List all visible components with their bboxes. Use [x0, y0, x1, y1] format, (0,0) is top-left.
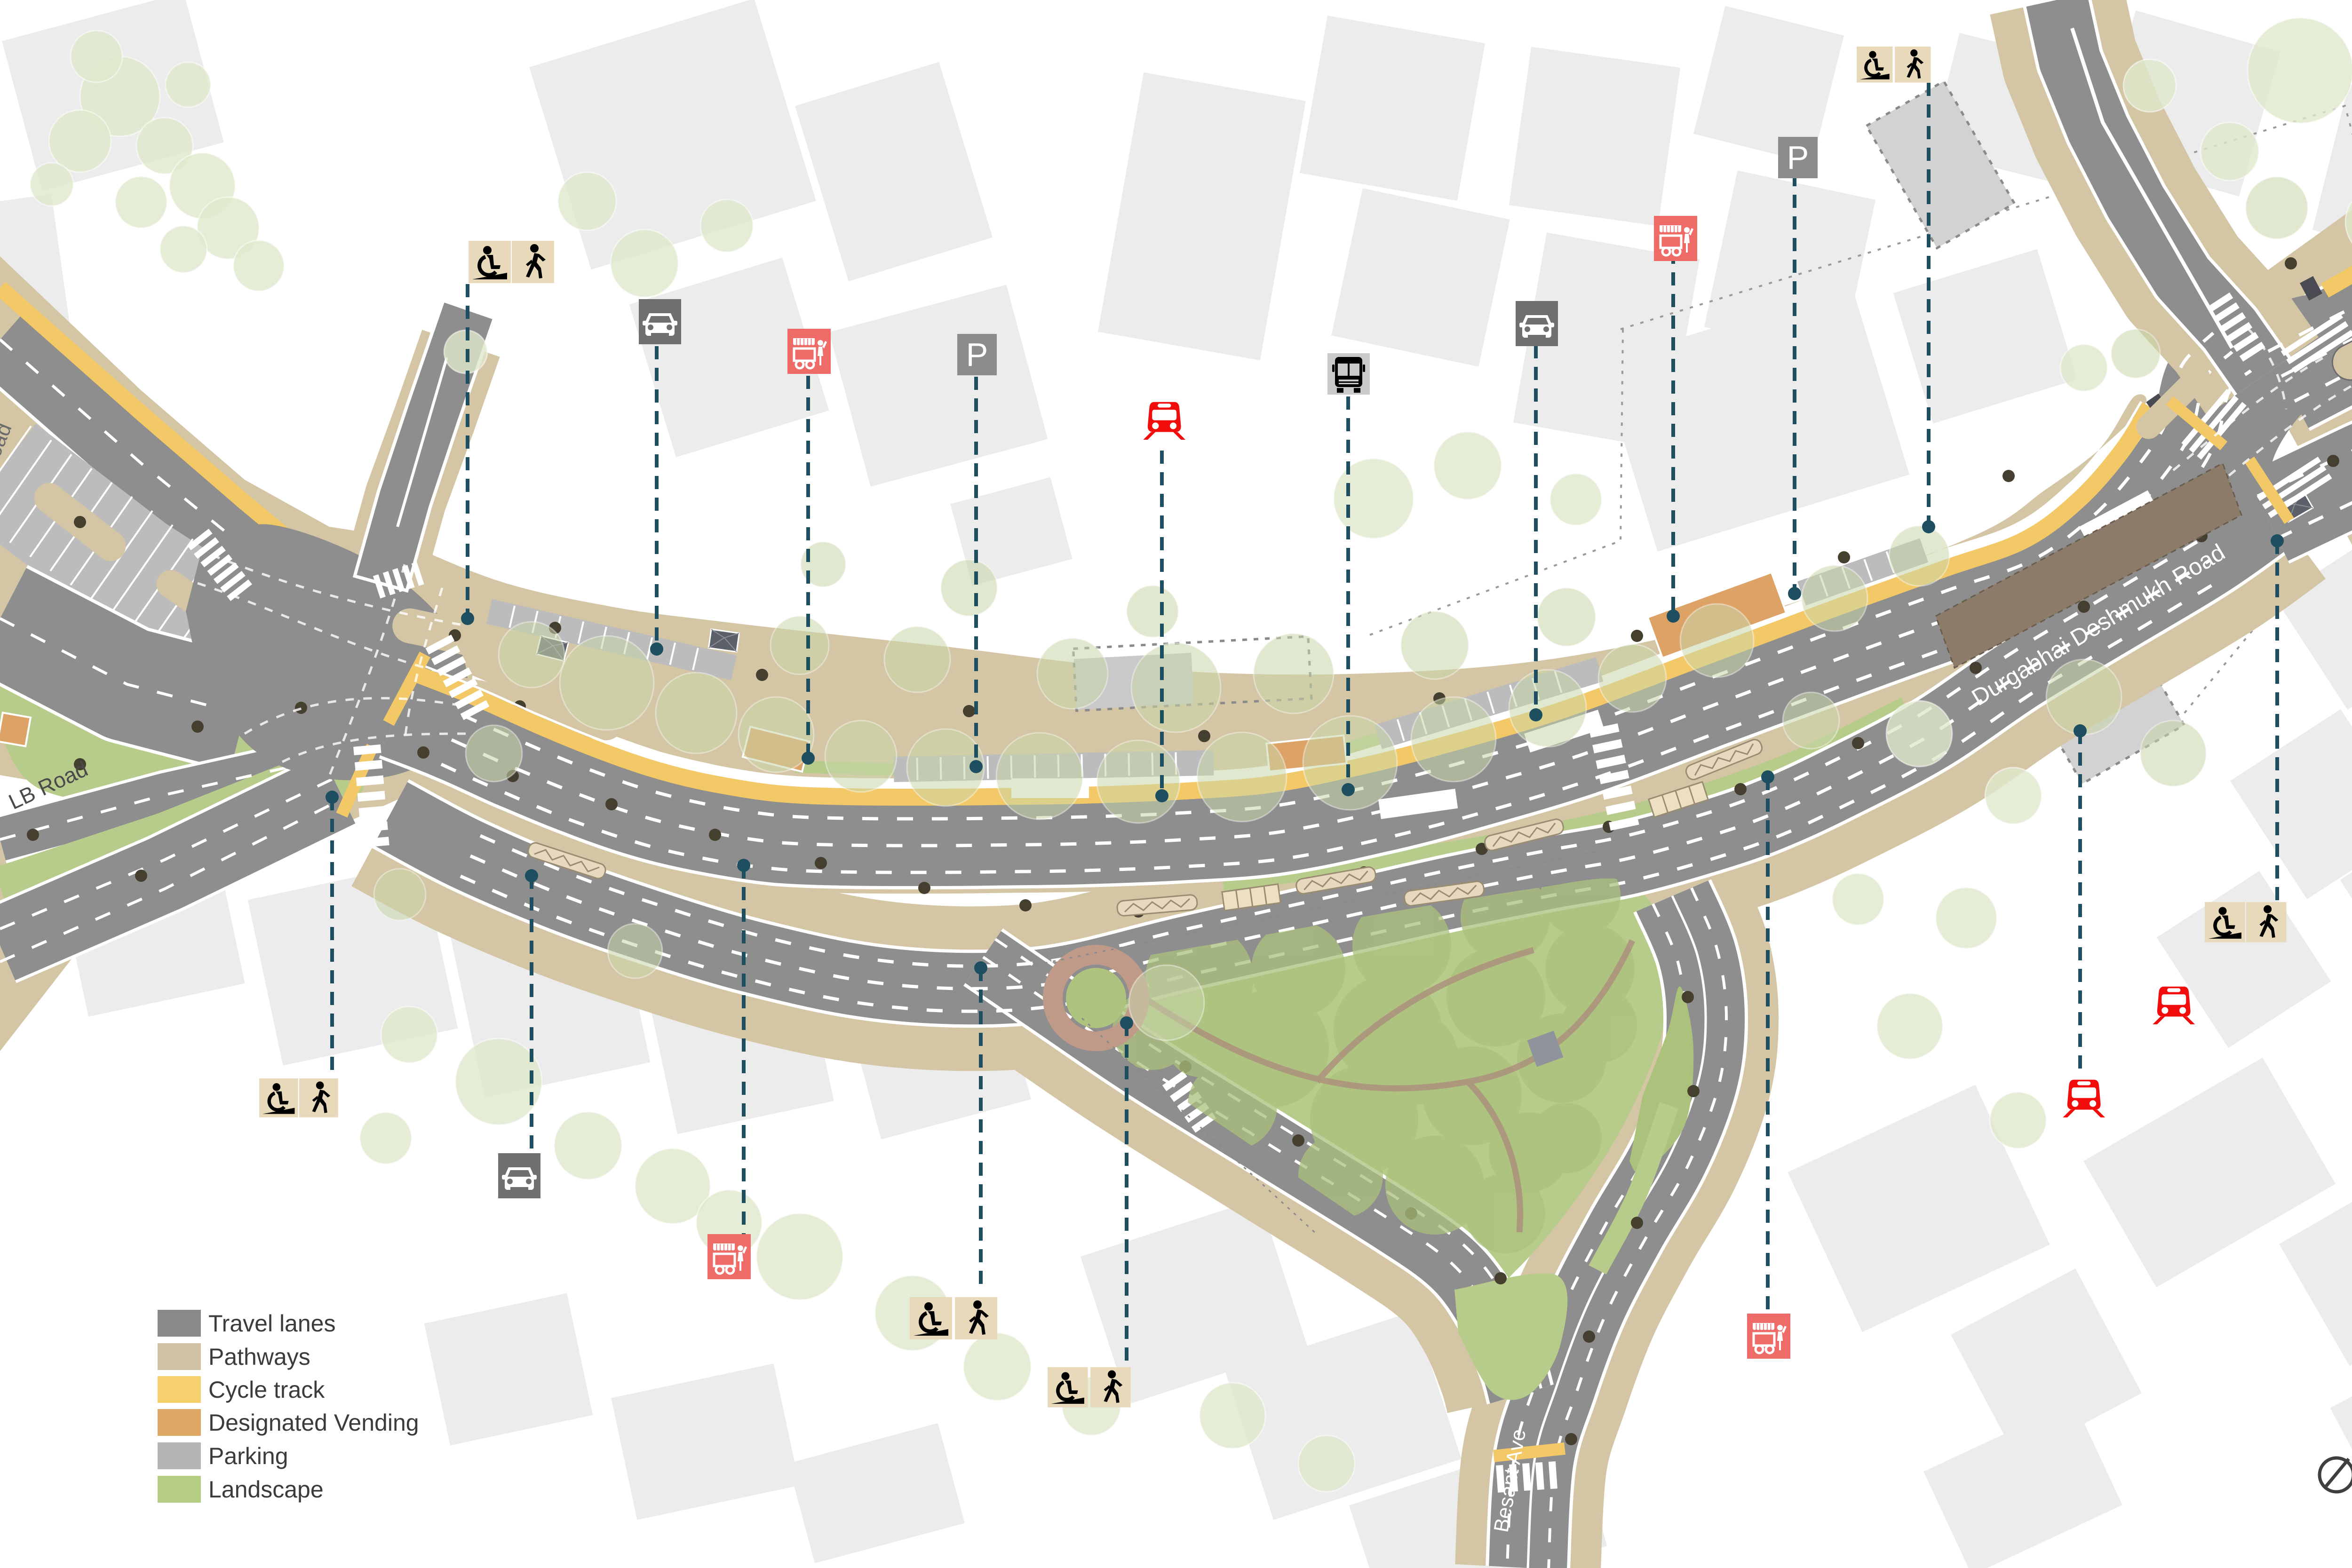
- svg-text:Travel lanes: Travel lanes: [208, 1310, 335, 1337]
- svg-text:Parking: Parking: [208, 1443, 288, 1469]
- svg-text:Cycle track: Cycle track: [208, 1377, 325, 1403]
- svg-text:Pathways: Pathways: [208, 1344, 310, 1370]
- svg-text:Landscape: Landscape: [208, 1476, 324, 1503]
- svg-text:Designated Vending: Designated Vending: [208, 1410, 419, 1436]
